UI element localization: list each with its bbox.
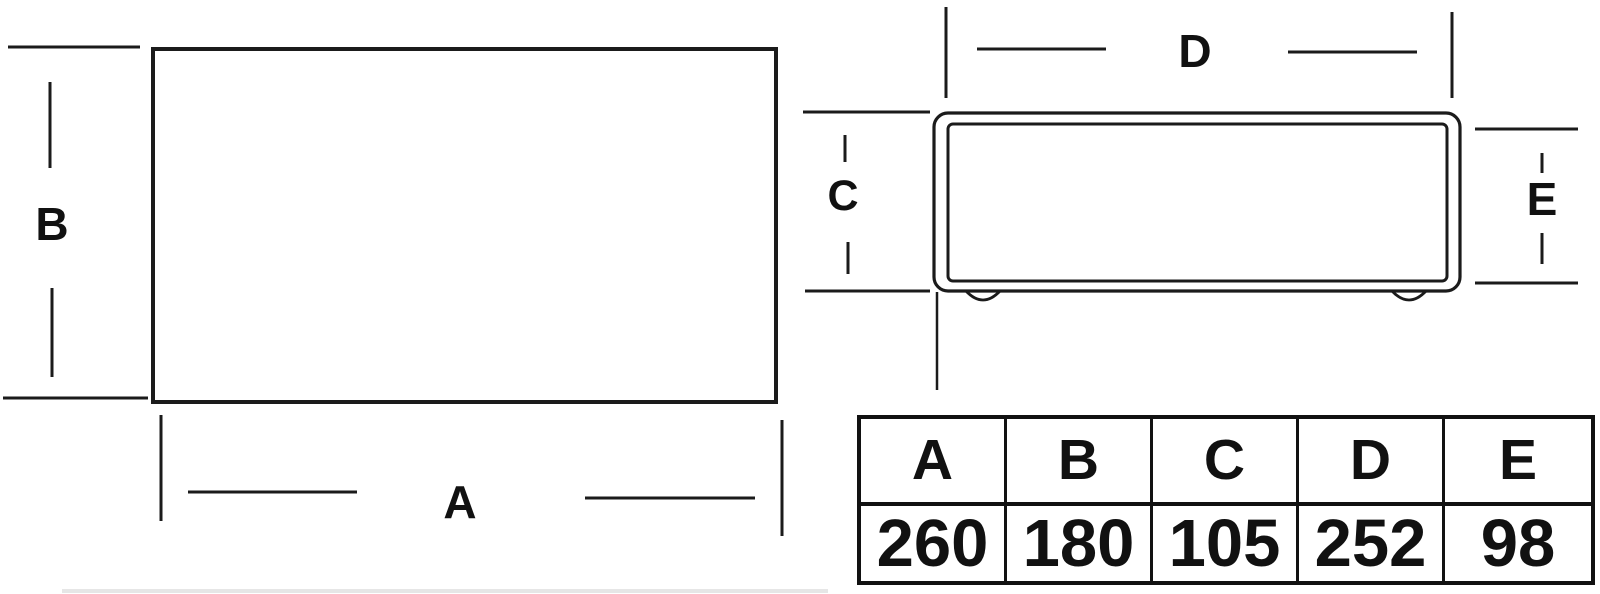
table-header-d: D	[1299, 419, 1445, 506]
dim-c-label: C	[827, 172, 858, 220]
table-value-a: 260	[861, 506, 1007, 581]
table-value-e: 98	[1445, 506, 1591, 581]
table-header-e: E	[1445, 419, 1591, 506]
table-value-d: 252	[1299, 506, 1445, 581]
dimension-table: A B C D E 260 180 105 252 98	[857, 415, 1595, 585]
enclosure-front-panel	[948, 124, 1447, 281]
dim-b-label: B	[35, 198, 68, 250]
table-value-b: 180	[1007, 506, 1153, 581]
dim-e-label: E	[1527, 173, 1558, 225]
scan-artifact-line	[62, 589, 828, 593]
top-view: B A	[3, 47, 782, 536]
dim-a-label: A	[443, 476, 476, 528]
front-view: D C E	[803, 7, 1578, 390]
top-view-rectangle	[153, 49, 776, 402]
table-value-c: 105	[1153, 506, 1299, 581]
dimension-drawing-page: B A D C	[0, 0, 1600, 594]
table-header-b: B	[1007, 419, 1153, 506]
table-header-a: A	[861, 419, 1007, 506]
enclosure-outer-shell	[934, 113, 1460, 291]
table-header-c: C	[1153, 419, 1299, 506]
dim-d-label: D	[1178, 25, 1211, 77]
